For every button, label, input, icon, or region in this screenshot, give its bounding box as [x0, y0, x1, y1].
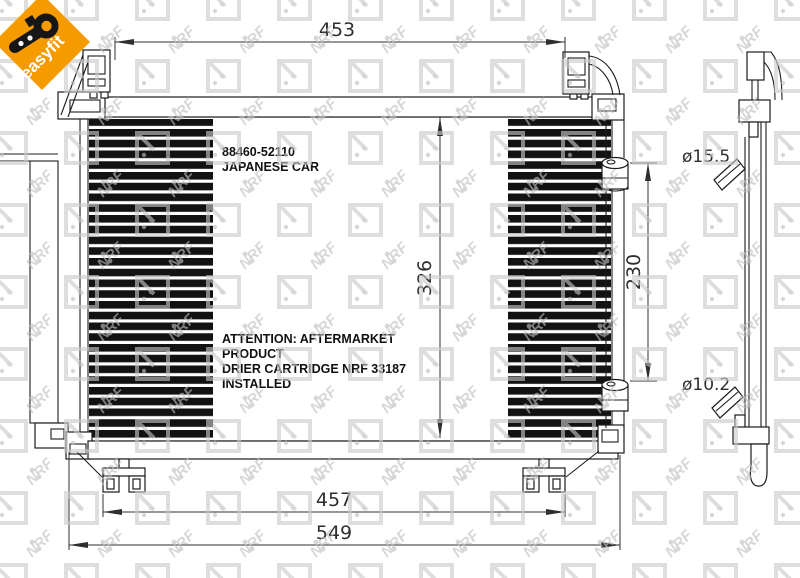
nrf-watermark: [0, 0, 800, 578]
condenser-technical-drawing: NRF: [0, 0, 800, 578]
